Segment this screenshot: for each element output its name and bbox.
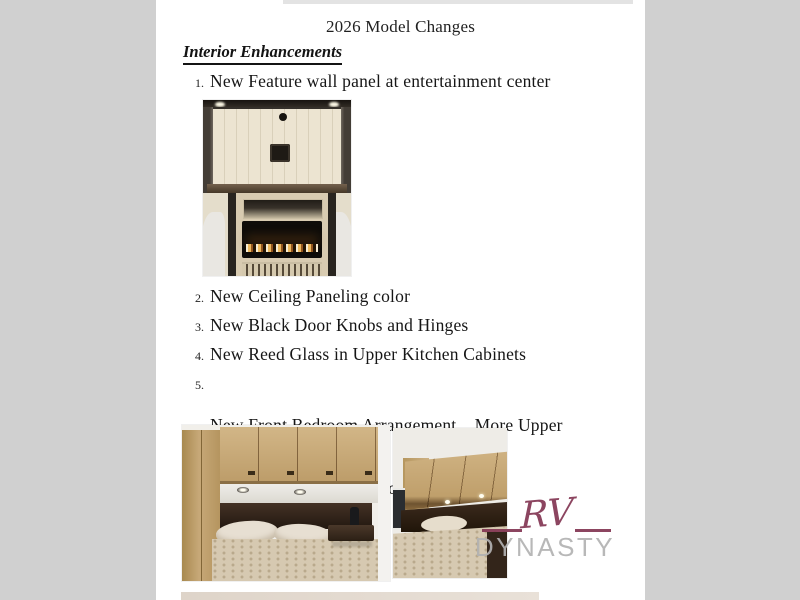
cutoff-image-top-edge: [283, 0, 633, 4]
list-item-1: 1. New Feature wall panel at entertainme…: [195, 71, 551, 92]
rv-dynasty-watermark: RV DYNASTY: [477, 498, 613, 560]
bedroom-photo-left: [182, 425, 390, 581]
puck-light: [294, 489, 306, 495]
list-number: 2.: [195, 291, 210, 306]
section-heading: Interior Enhancements: [183, 42, 342, 65]
viewer-gutter-left: [0, 0, 156, 600]
countertop: [207, 184, 347, 193]
list-number: 4.: [195, 349, 210, 364]
plastic-wrap-left: [203, 212, 225, 276]
cabinet-post-right: [328, 193, 336, 276]
upper-storage-cabinets: [220, 427, 378, 484]
cabinet-post-left: [228, 193, 236, 276]
list-text: New Black Door Knobs and Hinges: [210, 315, 468, 336]
puck-light: [445, 500, 450, 504]
entertainment-center-photo: [203, 100, 351, 276]
nightstand: [328, 525, 374, 541]
cutoff-image-bottom-edge: [181, 592, 539, 600]
fireplace-insert: [242, 221, 322, 258]
list-item-2: 2. New Ceiling Paneling color: [195, 286, 410, 307]
wall-outlet: [279, 113, 287, 121]
cabinet-handles: [220, 471, 378, 475]
document-page: 2026 Model Changes Interior Enhancements…: [0, 0, 800, 600]
list-number: 1.: [195, 76, 210, 91]
speaker-cylinder: [350, 507, 359, 527]
tv-mount-plate: [270, 144, 290, 162]
puck-light: [237, 487, 249, 493]
list-item-3: 3. New Black Door Knobs and Hinges: [195, 315, 468, 336]
list-number: 3.: [195, 320, 210, 335]
fireplace-flames: [246, 244, 318, 252]
list-text: New Reed Glass in Upper Kitchen Cabinets: [210, 344, 526, 365]
front-wall: [378, 425, 390, 581]
page-title: 2026 Model Changes: [156, 17, 645, 37]
nightstand-shadow: [332, 541, 372, 547]
list-text: New Ceiling Paneling color: [210, 286, 410, 307]
list-text: New Feature wall panel at entertainment …: [210, 71, 551, 92]
vent-slats: [242, 262, 322, 276]
viewer-gutter-right: [645, 0, 800, 600]
wardrobe-door-seam: [201, 430, 202, 581]
list-item-4: 4. New Reed Glass in Upper Kitchen Cabin…: [195, 344, 526, 365]
list-number: 5.: [195, 378, 210, 393]
rv-script-logo: RV: [519, 491, 575, 536]
dynasty-wordmark: DYNASTY: [474, 534, 616, 560]
open-shelf: [243, 199, 323, 219]
